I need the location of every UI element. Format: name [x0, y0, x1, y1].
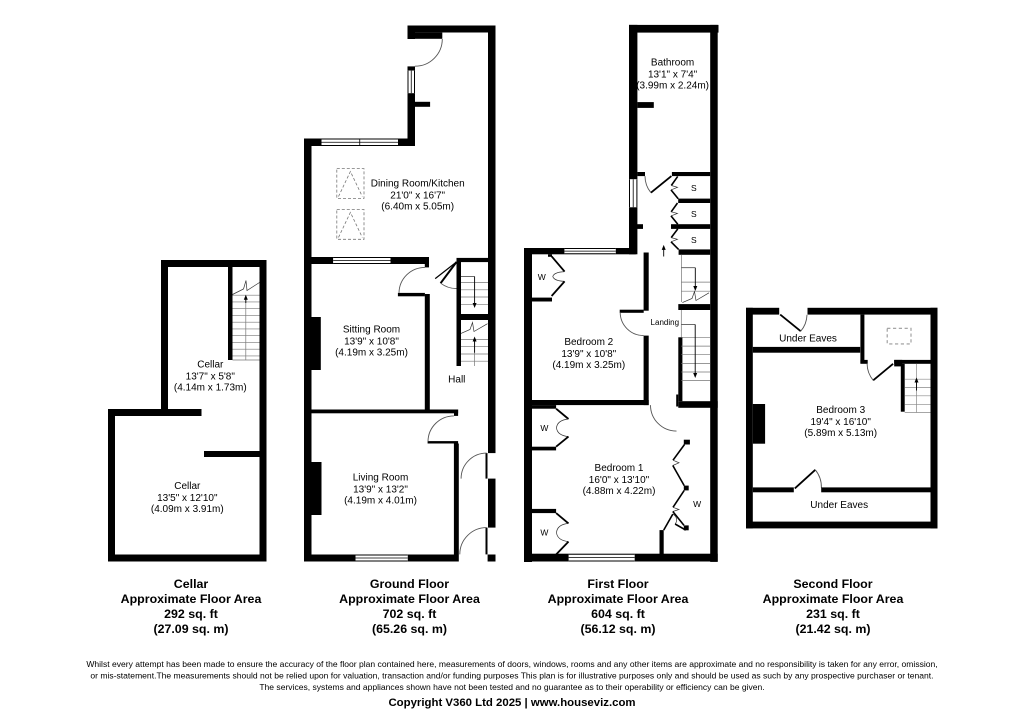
svg-text:Second Floor: Second Floor: [793, 577, 872, 591]
svg-text:(6.40m x 5.05m): (6.40m x 5.05m): [381, 202, 454, 213]
svg-text:702 sq. ft: 702 sq. ft: [383, 607, 437, 621]
svg-text:Under Eaves: Under Eaves: [810, 500, 868, 511]
svg-text:(27.09 sq. m): (27.09 sq. m): [153, 622, 228, 636]
svg-text:Hall: Hall: [448, 374, 465, 385]
svg-text:Whilst every attempt has been: Whilst every attempt has been made to en…: [86, 659, 937, 669]
svg-text:19'4" x 16'10": 19'4" x 16'10": [810, 417, 871, 428]
svg-text:Sitting Room: Sitting Room: [343, 324, 400, 335]
svg-text:(4.88m x 4.22m): (4.88m x 4.22m): [583, 486, 656, 497]
svg-text:231 sq. ft: 231 sq. ft: [806, 607, 860, 621]
svg-text:S: S: [691, 209, 697, 219]
svg-text:(4.19m x 3.25m): (4.19m x 3.25m): [335, 348, 408, 359]
svg-text:Bedroom 2: Bedroom 2: [564, 337, 613, 348]
svg-text:21'0" x 16'7": 21'0" x 16'7": [390, 191, 445, 202]
svg-text:Approximate Floor Area: Approximate Floor Area: [121, 592, 262, 606]
svg-text:(4.09m x 3.91m): (4.09m x 3.91m): [151, 504, 224, 515]
svg-text:(4.19m x 4.01m): (4.19m x 4.01m): [344, 496, 417, 507]
svg-text:(5.89m x 5.13m): (5.89m x 5.13m): [804, 428, 877, 439]
svg-text:The services, systems and appl: The services, systems and appliances sho…: [259, 682, 764, 692]
svg-text:Bathroom: Bathroom: [651, 58, 694, 69]
svg-text:S: S: [691, 235, 697, 245]
svg-text:W: W: [540, 528, 548, 538]
svg-text:W: W: [693, 499, 701, 509]
svg-text:13'9" x 10'8": 13'9" x 10'8": [344, 337, 399, 348]
svg-text:(56.12 sq. m): (56.12 sq. m): [580, 622, 655, 636]
svg-text:292 sq. ft: 292 sq. ft: [164, 607, 218, 621]
svg-text:Dining Room/Kitchen: Dining Room/Kitchen: [371, 178, 465, 189]
svg-text:Approximate Floor Area: Approximate Floor Area: [339, 592, 480, 606]
svg-text:16'0" x 13'10": 16'0" x 13'10": [589, 475, 650, 486]
svg-text:Bedroom 3: Bedroom 3: [816, 405, 865, 416]
svg-text:(65.26 sq. m): (65.26 sq. m): [372, 622, 447, 636]
svg-text:Under Eaves: Under Eaves: [779, 334, 837, 345]
svg-text:First Floor: First Floor: [587, 577, 648, 591]
svg-text:(21.42 sq. m): (21.42 sq. m): [795, 622, 870, 636]
svg-text:or mis-statement.The measureme: or mis-statement.The measurements should…: [90, 671, 933, 681]
svg-text:Approximate Floor Area: Approximate Floor Area: [763, 592, 904, 606]
svg-text:S: S: [691, 183, 697, 193]
svg-text:13'5" x 12'10": 13'5" x 12'10": [157, 493, 218, 504]
svg-text:13'9" x 13'2": 13'9" x 13'2": [353, 485, 408, 496]
svg-text:13'7" x 5'8": 13'7" x 5'8": [186, 372, 236, 383]
svg-text:13'1" x 7'4": 13'1" x 7'4": [648, 70, 698, 81]
svg-text:Cellar: Cellar: [197, 360, 224, 371]
svg-text:Approximate Floor Area: Approximate Floor Area: [548, 592, 689, 606]
svg-text:(4.14m x 1.73m): (4.14m x 1.73m): [174, 383, 247, 394]
svg-text:Landing: Landing: [651, 318, 679, 327]
svg-text:Cellar: Cellar: [174, 577, 209, 591]
svg-text:W: W: [540, 423, 548, 433]
svg-text:W: W: [538, 272, 546, 282]
svg-text:(3.99m x 2.24m): (3.99m x 2.24m): [636, 81, 709, 92]
svg-text:Bedroom 1: Bedroom 1: [595, 463, 644, 474]
svg-text:Copyright V360 Ltd 2025 | www.: Copyright V360 Ltd 2025 | www.houseviz.c…: [388, 697, 635, 709]
svg-text:13'9" x 10'8": 13'9" x 10'8": [561, 349, 616, 360]
svg-text:604 sq. ft: 604 sq. ft: [591, 607, 645, 621]
svg-text:Ground Floor: Ground Floor: [370, 577, 449, 591]
svg-text:Cellar: Cellar: [174, 481, 201, 492]
svg-text:(4.19m x 3.25m): (4.19m x 3.25m): [552, 360, 625, 371]
svg-text:Living Room: Living Room: [353, 473, 409, 484]
